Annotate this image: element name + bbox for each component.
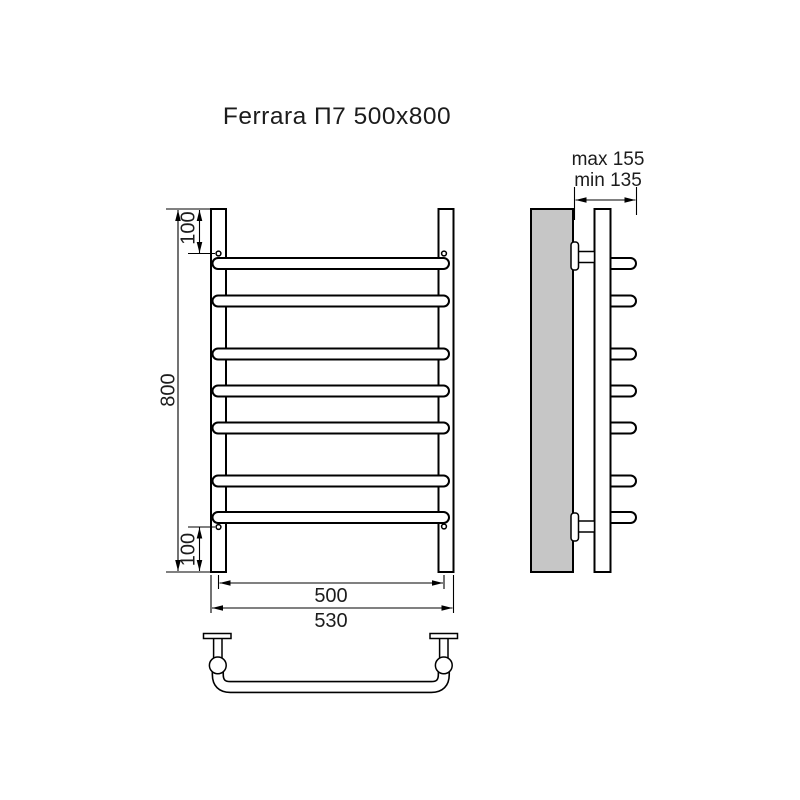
- top-view-right-flange: [430, 634, 458, 639]
- top-view-right-stem: [440, 638, 448, 659]
- lower-bracket-stem: [577, 521, 595, 532]
- front-view: [211, 209, 454, 572]
- drawing-title: Ferrara П7 500x800: [223, 103, 451, 130]
- dimension-label-bottom-offset: 100: [178, 533, 200, 566]
- upper-bracket-stem: [577, 252, 595, 263]
- dimension-label-overall-width: 530: [314, 610, 347, 632]
- mount-hole-top-left: [216, 251, 221, 256]
- side-post: [595, 209, 611, 572]
- wall-section: [531, 209, 573, 572]
- top-view-right-ball-joint: [435, 657, 452, 674]
- front-rung-4: [213, 386, 450, 397]
- mount-hole-top-right: [442, 251, 447, 256]
- front-rung-1: [213, 258, 450, 269]
- top-view-left-stem: [214, 638, 222, 659]
- top-view-tube-fill: [218, 664, 444, 687]
- front-rung-6: [213, 476, 450, 487]
- lower-bracket-flange: [571, 513, 579, 541]
- top-view-left-ball-joint: [209, 657, 226, 674]
- front-rung-5: [213, 423, 450, 434]
- top-view-detail: [204, 634, 458, 688]
- front-rung-3: [213, 349, 450, 360]
- front-view-dimensions: 800 100 100 500 530: [158, 209, 454, 632]
- towel-rail-drawing: Ferrara П7 500x800 800 100 100 500: [0, 0, 800, 800]
- front-rung-2: [213, 296, 450, 307]
- upper-bracket-flange: [571, 242, 579, 270]
- front-rung-7: [213, 512, 450, 523]
- dimension-label-clearance-max: max 155: [572, 149, 645, 170]
- dimension-label-height: 800: [158, 373, 180, 406]
- top-view-left-flange: [204, 634, 232, 639]
- dimension-label-axis-width: 500: [314, 585, 347, 607]
- mount-hole-bottom-left: [216, 525, 221, 530]
- mount-hole-bottom-right: [442, 524, 447, 529]
- dimension-label-clearance-min: min 135: [574, 170, 642, 191]
- technical-drawing-page: Ferrara П7 500x800 800 100 100 500: [0, 0, 800, 800]
- dimension-label-top-offset: 100: [178, 211, 200, 244]
- side-view: [531, 209, 636, 572]
